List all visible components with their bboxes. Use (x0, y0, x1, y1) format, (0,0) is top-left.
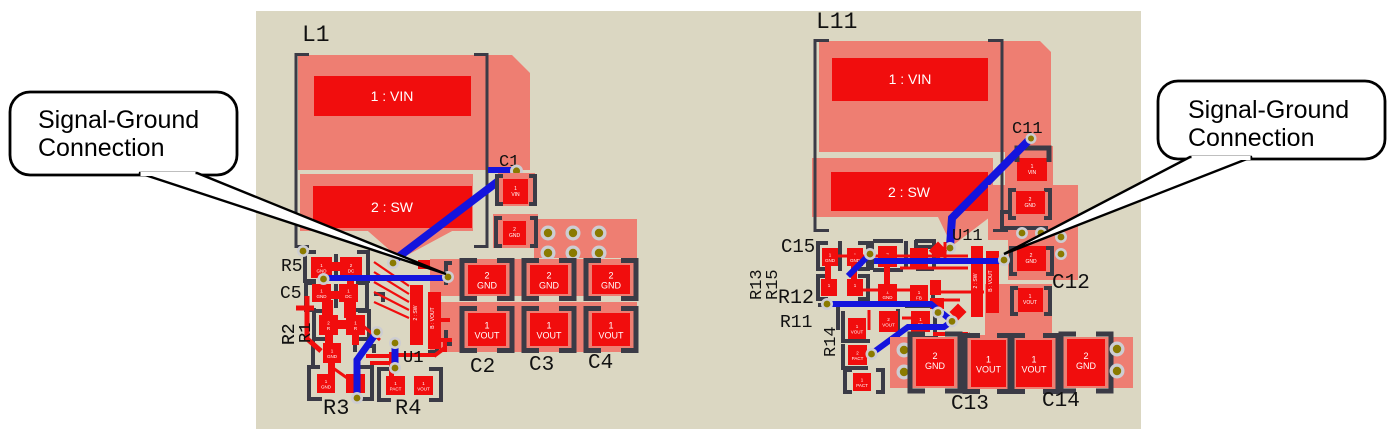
svg-text:GND: GND (317, 294, 328, 299)
svg-text:Connection: Connection (38, 134, 164, 162)
svg-text:1: 1 (1031, 355, 1036, 365)
svg-text:VOUT: VOUT (1023, 300, 1037, 306)
svg-text:R5: R5 (281, 257, 303, 277)
svg-text:VOUT: VOUT (417, 387, 430, 392)
svg-text:VOUT: VOUT (882, 323, 895, 328)
svg-text:2: 2 (608, 271, 613, 281)
svg-text:GND: GND (1076, 361, 1097, 371)
svg-text:R12: R12 (778, 287, 814, 310)
svg-text:GND: GND (317, 269, 328, 274)
svg-text:1 : VIN: 1 : VIN (889, 71, 932, 87)
svg-text:C13: C13 (951, 393, 989, 416)
svg-text:R3: R3 (323, 396, 349, 421)
svg-text:VOUT: VOUT (851, 330, 864, 335)
svg-text:VOUT: VOUT (474, 331, 500, 341)
svg-text:2 : SW: 2 : SW (371, 199, 414, 215)
svg-text:VIN: VIN (1028, 170, 1037, 176)
svg-text:Signal-Ground: Signal-Ground (1188, 96, 1349, 124)
svg-text:2: 2 (546, 271, 551, 281)
svg-text:B : VOUT: B : VOUT (430, 307, 436, 328)
svg-text:1 : VIN: 1 : VIN (371, 88, 414, 104)
svg-text:R1: R1 (297, 323, 316, 343)
svg-text:GND: GND (327, 354, 338, 359)
svg-text:U1: U1 (403, 349, 423, 368)
svg-text:VOUT: VOUT (976, 365, 1002, 375)
svg-text:VIN: VIN (511, 192, 520, 198)
svg-text:DC: DC (345, 294, 352, 299)
svg-text:2: 2 (484, 271, 489, 281)
svg-text:PACT: PACT (856, 383, 868, 388)
svg-text:1: 1 (484, 321, 489, 331)
svg-text:1: 1 (608, 321, 613, 331)
svg-text:R14: R14 (822, 326, 841, 357)
svg-text:2: 2 (932, 351, 937, 361)
svg-text:C15: C15 (781, 236, 815, 258)
svg-text:C4: C4 (588, 352, 613, 375)
svg-text:L11: L11 (816, 9, 857, 35)
svg-text:R11: R11 (780, 313, 812, 333)
svg-text:GND: GND (509, 233, 521, 239)
svg-text:L1: L1 (302, 22, 330, 48)
svg-text:2 : SW: 2 : SW (888, 184, 931, 200)
svg-text:GND: GND (883, 295, 894, 300)
svg-text:C14: C14 (1042, 390, 1080, 413)
svg-text:U11: U11 (952, 227, 983, 246)
svg-text:2 : SW: 2 : SW (413, 305, 419, 320)
svg-text:C5: C5 (280, 284, 302, 304)
svg-text:VOUT: VOUT (536, 331, 562, 341)
svg-text:GND: GND (1025, 259, 1037, 265)
svg-text:DC: DC (348, 269, 355, 274)
svg-text:GND: GND (825, 258, 836, 263)
svg-text:FB: FB (916, 296, 922, 301)
svg-text:Connection: Connection (1188, 124, 1314, 152)
svg-text:2: 2 (1083, 351, 1088, 361)
svg-text:C12: C12 (1052, 272, 1090, 295)
svg-text:GND: GND (601, 281, 622, 291)
svg-text:C2: C2 (470, 356, 495, 379)
svg-text:C3: C3 (529, 354, 554, 377)
svg-text:Signal-Ground: Signal-Ground (38, 106, 199, 134)
svg-text:GND: GND (321, 385, 332, 390)
svg-text:GND: GND (539, 281, 560, 291)
svg-text:2 : SW: 2 : SW (973, 273, 979, 288)
svg-text:1: 1 (986, 355, 991, 365)
svg-text:B : VOUT: B : VOUT (988, 270, 994, 291)
svg-text:GND: GND (477, 281, 498, 291)
svg-text:PACT: PACT (852, 356, 864, 361)
svg-text:GND: GND (1024, 203, 1036, 209)
svg-text:GND: GND (925, 361, 946, 371)
svg-text:1: 1 (546, 321, 551, 331)
svg-text:PACT: PACT (390, 387, 402, 392)
svg-text:R4: R4 (395, 396, 421, 421)
svg-text:VOUT: VOUT (598, 331, 624, 341)
svg-text:VOUT: VOUT (1021, 365, 1047, 375)
